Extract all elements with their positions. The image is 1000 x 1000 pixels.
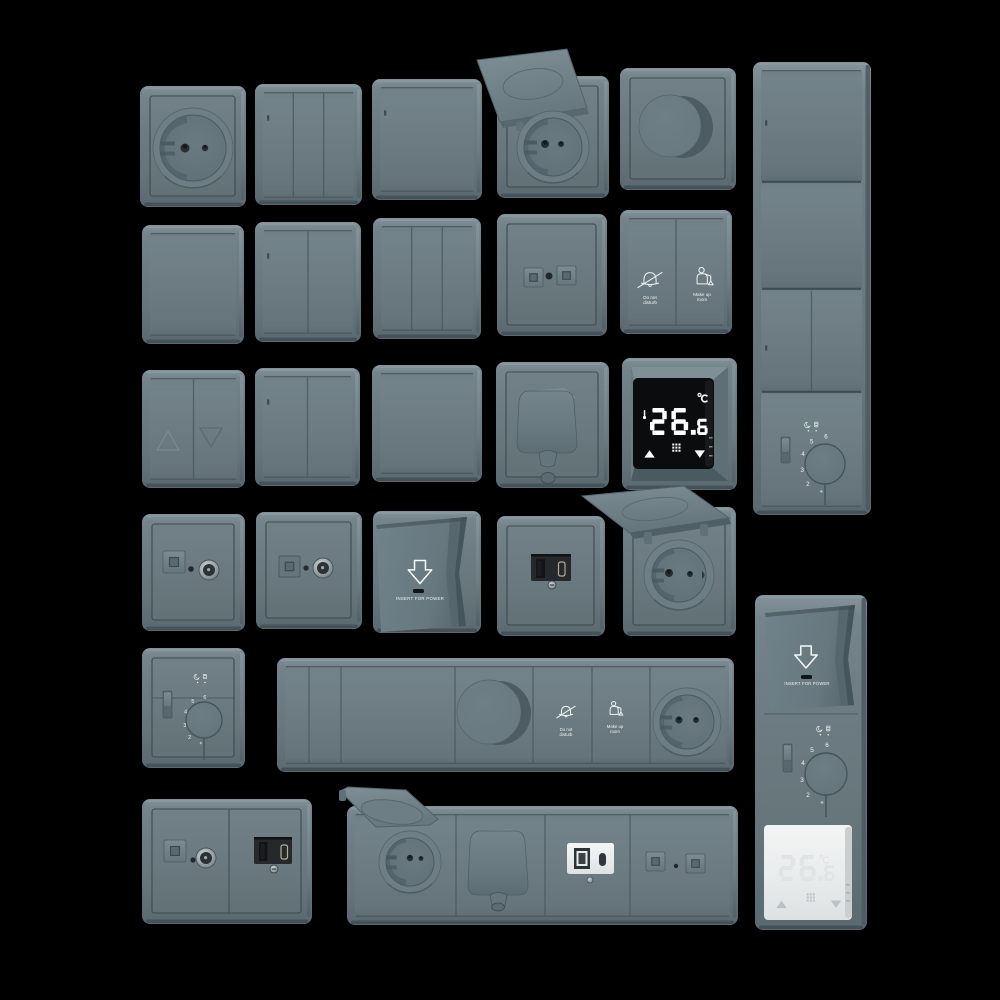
svg-text:INSERT FOR POWER: INSERT FOR POWER xyxy=(396,596,444,601)
svg-text:4: 4 xyxy=(801,760,805,767)
svg-text:6: 6 xyxy=(203,695,206,701)
svg-text:3: 3 xyxy=(800,777,804,784)
svg-text:6: 6 xyxy=(824,434,828,441)
svg-text:INSERT FOR POWER: INSERT FOR POWER xyxy=(784,681,829,686)
svg-text:✳: ✳ xyxy=(819,489,823,494)
svg-text:3: 3 xyxy=(183,723,186,729)
svg-text:5: 5 xyxy=(810,438,814,445)
svg-text:4: 4 xyxy=(801,451,805,458)
svg-text:5: 5 xyxy=(191,699,194,705)
svg-text:6: 6 xyxy=(825,742,829,749)
svg-text:5: 5 xyxy=(810,747,814,754)
svg-text:✳: ✳ xyxy=(820,800,824,805)
svg-text:2: 2 xyxy=(806,481,810,488)
svg-text:2: 2 xyxy=(806,792,810,799)
svg-text:3: 3 xyxy=(800,467,804,474)
svg-text:Do notdisturb: Do notdisturb xyxy=(643,295,657,305)
svg-text:Do notdisturb: Do notdisturb xyxy=(560,727,574,737)
svg-text:4: 4 xyxy=(184,709,187,715)
svg-text:2: 2 xyxy=(188,735,191,741)
